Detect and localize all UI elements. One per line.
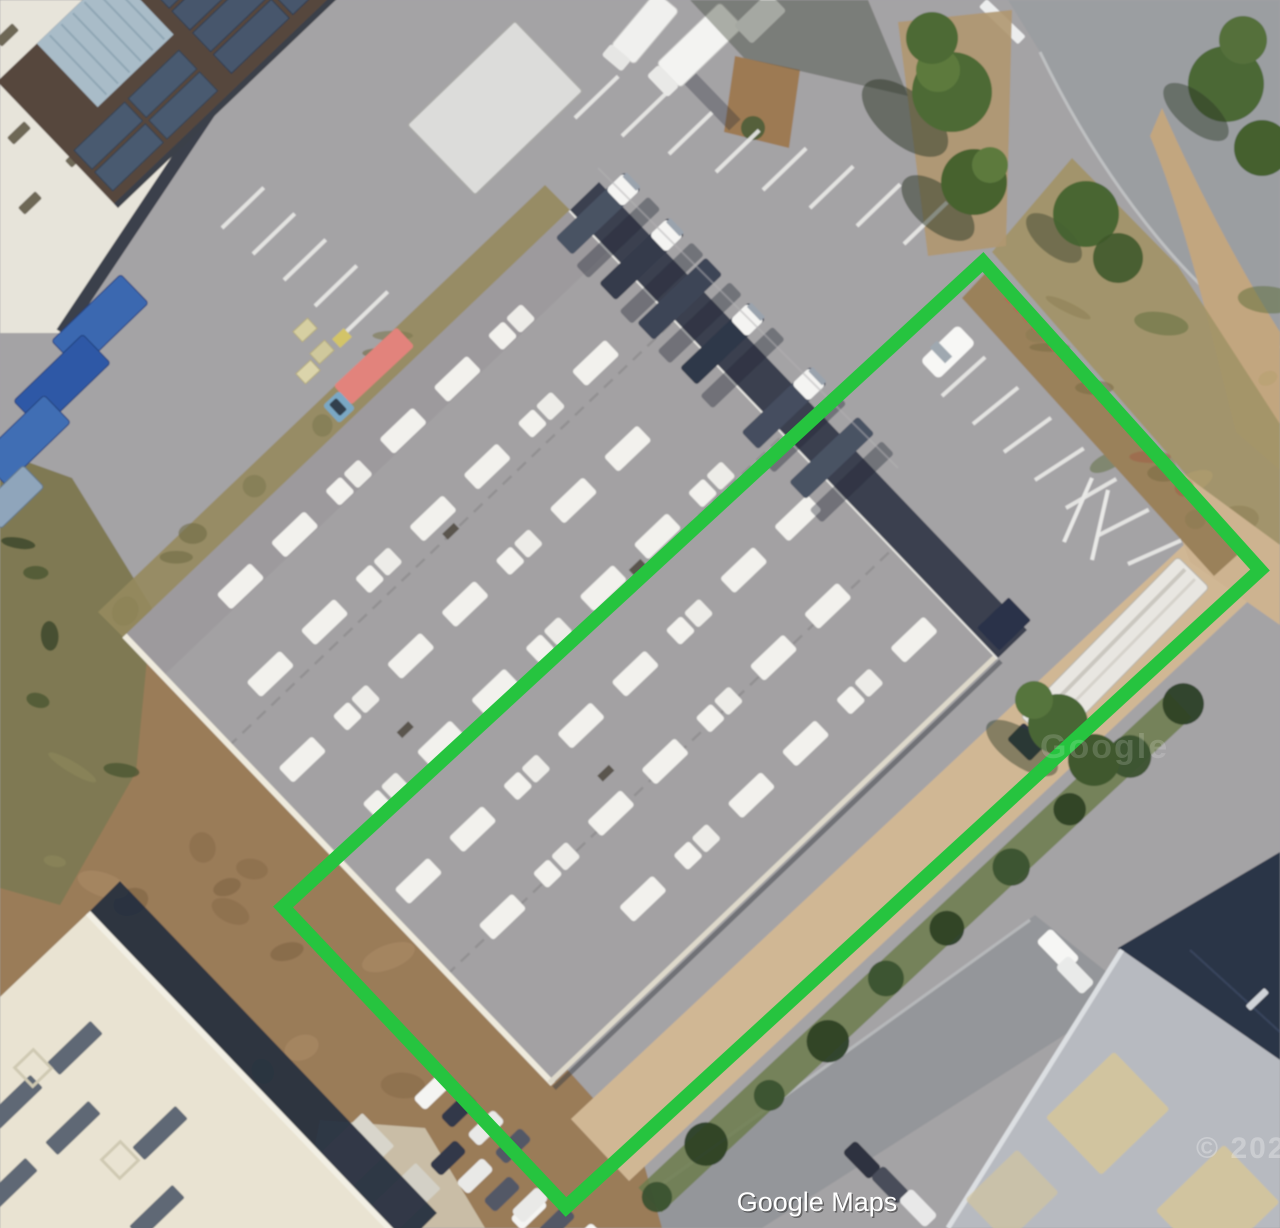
year-watermark: © 2021 bbox=[1196, 1132, 1280, 1165]
aerial-photo bbox=[0, 0, 1280, 1228]
attribution[interactable]: Google Maps Google Maps bbox=[737, 1187, 899, 1219]
map-canvas[interactable]: Google © 2021 Google Maps Google Maps bbox=[0, 0, 1280, 1228]
attribution-label[interactable]: Google Maps bbox=[737, 1187, 898, 1217]
map-viewport: Google © 2021 Google Maps Google Maps bbox=[0, 0, 1280, 1228]
google-watermark: Google bbox=[1040, 728, 1169, 766]
